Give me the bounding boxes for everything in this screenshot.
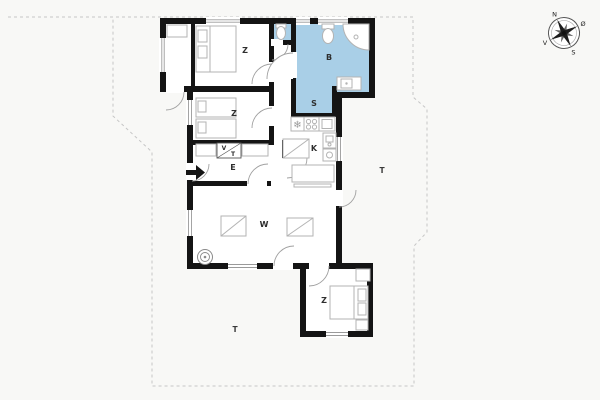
wall-wc-stub <box>283 40 296 45</box>
wardrobe-icon <box>356 269 370 281</box>
nightstand-icon <box>356 320 368 330</box>
compass-south-label: S <box>571 49 575 57</box>
compass-west-label: V <box>543 39 548 47</box>
wood-stove-center <box>204 256 207 259</box>
sink-basin-icon <box>322 120 332 129</box>
window-bed3-south <box>326 330 348 338</box>
label-bedroom-se: Z <box>321 296 327 305</box>
stove-icon <box>304 117 319 131</box>
sink-basin-icon <box>326 136 333 142</box>
window-north-1 <box>206 17 240 25</box>
pillow-icon <box>358 303 366 315</box>
label-closet-washer: V <box>222 145 227 152</box>
toilet-icon <box>277 27 286 40</box>
wall-shower-south <box>291 113 337 117</box>
snowflake-icon: ❄ <box>293 120 301 131</box>
door-opening-entry-living <box>247 180 267 187</box>
wall-east-mid <box>336 92 342 269</box>
label-terrace-south: T <box>232 325 238 334</box>
label-bathroom: B <box>326 53 332 62</box>
pillow-icon <box>198 101 206 112</box>
compass-north-label: N <box>552 11 557 19</box>
wardrobe-icon <box>196 144 216 156</box>
label-living-room: W <box>260 220 269 229</box>
window-west-1 <box>186 100 194 125</box>
pillow-icon <box>198 30 207 42</box>
wall-shower-east <box>332 86 337 117</box>
toilet-icon <box>323 29 334 44</box>
label-kitchen: K <box>311 144 318 153</box>
label-bedroom-nw: Z <box>242 46 248 55</box>
compass-rose: N Ø S V <box>543 11 586 57</box>
wall-bath-east <box>369 18 375 98</box>
door-opening-bed2 <box>268 106 275 126</box>
dining-table-icon <box>292 165 334 182</box>
pillow-icon <box>198 122 206 133</box>
floor-plan: ❄ <box>0 0 600 400</box>
wall-annex-divider <box>191 18 195 92</box>
door-opening-bed3 <box>309 262 329 270</box>
wardrobe-icon <box>242 144 268 156</box>
label-entry: E <box>230 163 235 172</box>
pillow-icon <box>358 289 366 301</box>
door-opening-dining <box>335 190 343 206</box>
door-opening-annex <box>166 85 184 93</box>
label-bedroom-w: Z <box>231 109 237 118</box>
door-opening-wc <box>271 39 283 46</box>
bench-icon <box>294 184 331 187</box>
shelf-icon <box>167 25 187 37</box>
door-opening-living <box>273 262 293 270</box>
label-shower-room: S <box>311 99 317 108</box>
wall-bed3-west <box>300 263 306 337</box>
pillow-icon <box>198 46 207 58</box>
compass-east-label: Ø <box>580 20 585 28</box>
window-north-2 <box>296 17 310 25</box>
window-west-2 <box>186 210 194 236</box>
appliance-icon <box>323 149 336 161</box>
window-annex-west <box>159 38 167 72</box>
window-south-living <box>228 262 257 270</box>
label-terrace-east: T <box>379 166 385 175</box>
door-arc-annex <box>166 92 184 110</box>
faucet-icon <box>345 82 347 84</box>
